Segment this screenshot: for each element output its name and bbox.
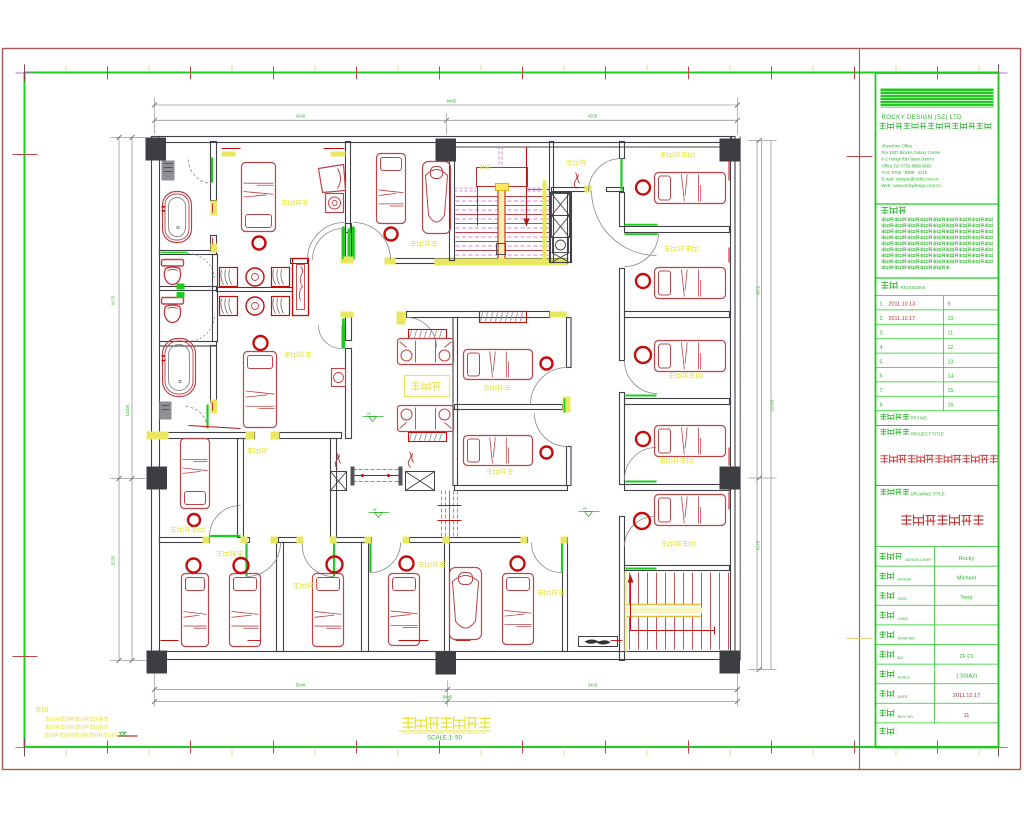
svg-text:2F 01: 2F 01 bbox=[959, 654, 973, 660]
svg-text:5040: 5040 bbox=[296, 683, 306, 688]
svg-text:CHKD: CHKD bbox=[898, 617, 909, 621]
svg-text:2F: 2F bbox=[583, 506, 588, 511]
svg-text:8445: 8445 bbox=[447, 99, 457, 104]
svg-text:3.: 3. bbox=[880, 331, 884, 337]
svg-text:DESGN CHIEF: DESGN CHIEF bbox=[906, 558, 933, 562]
svg-text:1.: 1. bbox=[880, 302, 884, 308]
svg-text:10.: 10. bbox=[948, 316, 955, 322]
svg-text:E-mail: rockysz@rocky.com.cn: E-mail: rockysz@rocky.com.cn bbox=[882, 177, 940, 182]
svg-text:Office Tel: 0755 8888 6666: Office Tel: 0755 8888 6666 bbox=[882, 163, 933, 168]
svg-text:2011.10.13: 2011.10.13 bbox=[889, 302, 916, 308]
svg-text:FAX: 0755 - 8399 - 2218: FAX: 0755 - 8399 - 2218 bbox=[882, 170, 928, 175]
svg-text:DWN: DWN bbox=[898, 597, 907, 601]
svg-text:8445: 8445 bbox=[443, 695, 453, 700]
svg-text:9175: 9175 bbox=[111, 295, 116, 305]
svg-text:SCALE: SCALE bbox=[898, 676, 911, 680]
svg-text:14.: 14. bbox=[948, 374, 955, 380]
svg-text:3405: 3405 bbox=[588, 683, 598, 688]
svg-text:14405: 14405 bbox=[125, 404, 130, 416]
svg-text:15205: 15205 bbox=[770, 399, 775, 411]
svg-text:4570: 4570 bbox=[756, 285, 761, 295]
svg-text:9.: 9. bbox=[948, 302, 952, 308]
svg-text:5.: 5. bbox=[880, 359, 884, 365]
svg-text:DATE: DATE bbox=[898, 695, 908, 699]
svg-text:DRAWING TITLE: DRAWING TITLE bbox=[911, 492, 945, 497]
svg-text:Rm 2607 BlockA Galaxy Center: Rm 2607 BlockA Galaxy Center bbox=[882, 150, 941, 155]
svg-text:4205: 4205 bbox=[588, 114, 598, 119]
svg-text:16.: 16. bbox=[948, 403, 955, 409]
svg-text:15.: 15. bbox=[948, 388, 955, 394]
svg-text:VERIFIED: VERIFIED bbox=[898, 636, 916, 640]
svg-text:DESGN: DESGN bbox=[898, 578, 912, 582]
svg-text:2011.10.17: 2011.10.17 bbox=[889, 316, 916, 322]
svg-text:2011.10.17: 2011.10.17 bbox=[953, 693, 981, 699]
svg-text:Web : www.rockydesign.com.cn: Web : www.rockydesign.com.cn bbox=[882, 183, 942, 188]
svg-text:4175: 4175 bbox=[756, 540, 761, 550]
svg-text:12.: 12. bbox=[948, 345, 955, 351]
svg-text:Rocky: Rocky bbox=[959, 556, 975, 562]
svg-text:Shenzhen Office :: Shenzhen Office : bbox=[882, 144, 915, 149]
svg-text:2F: 2F bbox=[373, 507, 378, 512]
svg-text:PRJ NO.: PRJ NO. bbox=[911, 416, 928, 421]
svg-text:Terry: Terry bbox=[960, 595, 973, 601]
svg-text:4240: 4240 bbox=[296, 114, 306, 119]
svg-text:SCALE 1: 50: SCALE 1: 50 bbox=[427, 736, 462, 742]
svg-text:8.: 8. bbox=[880, 403, 884, 409]
svg-text:REVISIONS: REVISIONS bbox=[901, 285, 926, 290]
svg-text:11.: 11. bbox=[948, 331, 955, 337]
svg-text:1:50(A2): 1:50(A2) bbox=[956, 674, 978, 680]
svg-text:2F: 2F bbox=[367, 411, 372, 416]
svg-text:PROJECT TITLE: PROJECT TITLE bbox=[911, 432, 945, 437]
svg-text:NO.: NO. bbox=[898, 656, 905, 660]
svg-text:REV. NO.: REV. NO. bbox=[898, 715, 914, 719]
svg-text:5230: 5230 bbox=[111, 555, 116, 565]
svg-text:7.: 7. bbox=[880, 388, 884, 394]
svg-text:ROCKY DESIGN (SZ) LTD: ROCKY DESIGN (SZ) LTD bbox=[882, 114, 963, 121]
svg-text:11: 11 bbox=[964, 713, 970, 719]
svg-text:13.: 13. bbox=[948, 359, 955, 365]
svg-text:6-2 Hongli Rd Futian District: 6-2 Hongli Rd Futian District bbox=[882, 157, 935, 162]
svg-text:6.: 6. bbox=[880, 374, 884, 380]
svg-text:Michael: Michael bbox=[957, 576, 976, 582]
svg-text:4.: 4. bbox=[880, 345, 884, 351]
svg-text:2.: 2. bbox=[880, 316, 884, 322]
